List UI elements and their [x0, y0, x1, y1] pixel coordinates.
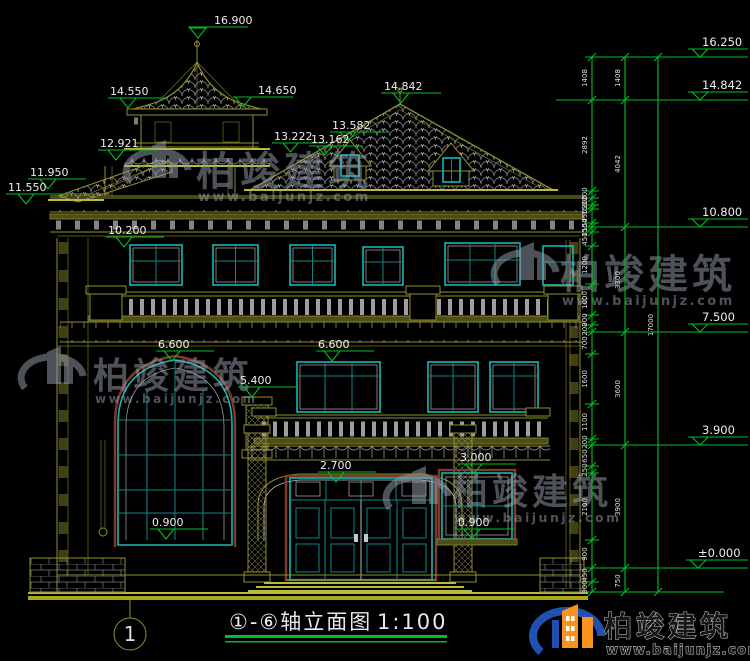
entry-steps: [248, 580, 472, 591]
svg-text:3900: 3900: [614, 498, 622, 516]
door-handle-left: [354, 534, 358, 542]
svg-text:3600: 3600: [614, 380, 622, 398]
cad-viewport: 柏竣建筑 www.baijunjz.com 柏竣建筑 www.baijunjz.…: [0, 0, 750, 661]
svg-text:650: 650: [581, 449, 589, 462]
svg-text:13.582: 13.582: [332, 119, 371, 132]
stone-base-left: [30, 558, 125, 592]
svg-text:4042: 4042: [614, 155, 622, 173]
svg-text:3.900: 3.900: [702, 423, 735, 437]
window-2f-right2: [490, 362, 538, 412]
marker-0900-left: 0.900: [150, 516, 208, 539]
svg-text:14.842: 14.842: [384, 80, 423, 93]
svg-text:700: 700: [581, 336, 589, 349]
axis-number: 1: [124, 622, 137, 646]
svg-text:12.921: 12.921: [100, 137, 139, 150]
svg-text:3300: 3300: [614, 271, 622, 289]
marker-14842: 14.842: [381, 80, 441, 103]
logo-building-2: [582, 617, 593, 648]
svg-text:5.400: 5.400: [240, 374, 272, 387]
title-block: ①-⑥轴立面图 1:100 1: [114, 600, 448, 650]
svg-text:250: 250: [581, 463, 589, 476]
svg-text:1200: 1200: [581, 256, 589, 274]
door-handle-right: [364, 534, 368, 542]
svg-text:450: 450: [581, 568, 589, 581]
svg-text:1600: 1600: [581, 370, 589, 388]
brand-logo: 柏竣建筑 www.baijunjz.com: [533, 604, 750, 658]
watermark-text: 柏竣建筑: [196, 149, 372, 195]
svg-text:2100: 2100: [581, 498, 589, 516]
ground-band: [28, 596, 588, 600]
logo-building: [562, 604, 578, 648]
svg-text:14.650: 14.650: [258, 84, 297, 97]
svg-text:7.500: 7.500: [702, 310, 735, 324]
marker-16900: 16.900: [188, 14, 253, 38]
marker-3900: 3.900: [688, 423, 748, 445]
window-2f-center: [297, 362, 380, 412]
svg-text:1000: 1000: [581, 291, 589, 309]
window-3f-4: [363, 247, 403, 285]
svg-text:6.600: 6.600: [158, 338, 190, 351]
marker-10800: 10.800: [688, 205, 748, 227]
watermark-url: www.baijunjz.com: [95, 392, 258, 406]
svg-text:750: 750: [614, 574, 622, 587]
svg-text:200: 200: [581, 322, 589, 335]
marker-16250: 16.250: [688, 35, 748, 57]
svg-text:0.900: 0.900: [458, 516, 490, 529]
svg-text:11.950: 11.950: [30, 166, 69, 179]
title-underline-2: [225, 641, 447, 643]
window-3f-3: [290, 245, 335, 285]
svg-text:16.900: 16.900: [214, 14, 253, 27]
svg-text:1408: 1408: [581, 69, 589, 87]
svg-text:3.000: 3.000: [460, 451, 492, 464]
window-2f-right1: [428, 362, 478, 412]
balcony-2f: [250, 408, 550, 460]
svg-text:14.550: 14.550: [110, 85, 149, 98]
elevation-drawing: 柏竣建筑 www.baijunjz.com 柏竣建筑 www.baijunjz.…: [0, 0, 750, 661]
svg-text:300: 300: [581, 580, 589, 593]
watermark-top: 柏竣建筑 www.baijunjz.com: [126, 140, 372, 205]
logo-name: 柏竣建筑: [604, 610, 732, 643]
stone-base-right: [540, 558, 584, 592]
svg-text:450: 450: [581, 232, 589, 245]
marker-7500: 7.500: [688, 310, 748, 332]
svg-text:0.900: 0.900: [152, 516, 184, 529]
svg-text:17000: 17000: [647, 314, 655, 336]
svg-text:16.250: 16.250: [702, 35, 742, 49]
drawing-title: ①-⑥轴立面图: [229, 610, 372, 634]
svg-text:2892: 2892: [581, 136, 589, 154]
svg-text:2.700: 2.700: [320, 459, 352, 472]
drawing-scale: 1:100: [377, 610, 448, 634]
marker-14842-right: 14.842: [688, 78, 748, 100]
svg-text:10.200: 10.200: [108, 224, 147, 237]
svg-text:200: 200: [581, 435, 589, 448]
svg-text:10.800: 10.800: [702, 205, 742, 219]
svg-text:13.222: 13.222: [274, 130, 313, 143]
window-3f-1: [130, 245, 182, 285]
svg-text:1408: 1408: [614, 69, 622, 87]
svg-text:±0.000: ±0.000: [698, 546, 741, 560]
watermark-url: www.baijunjz.com: [198, 190, 371, 205]
svg-text:1100: 1100: [581, 413, 589, 431]
balcony-3f: [57, 286, 583, 346]
watermark-text: 柏竣建筑: [93, 356, 253, 397]
window-3f-5: [445, 243, 520, 285]
svg-text:14.842: 14.842: [702, 78, 742, 92]
marker-0000: ±0.000: [686, 546, 748, 568]
title-underline: [225, 635, 447, 638]
svg-text:11.550: 11.550: [8, 181, 47, 194]
svg-text:900: 900: [581, 547, 589, 560]
svg-text:6.600: 6.600: [318, 338, 350, 351]
tile-apron-2f: [250, 446, 550, 460]
svg-text:13.162: 13.162: [311, 133, 350, 146]
logo-url: www.baijunjz.com: [606, 643, 750, 658]
logo-bar-blue: [552, 620, 559, 648]
window-3f-2: [213, 245, 258, 285]
entrance-column-left: [244, 425, 270, 582]
